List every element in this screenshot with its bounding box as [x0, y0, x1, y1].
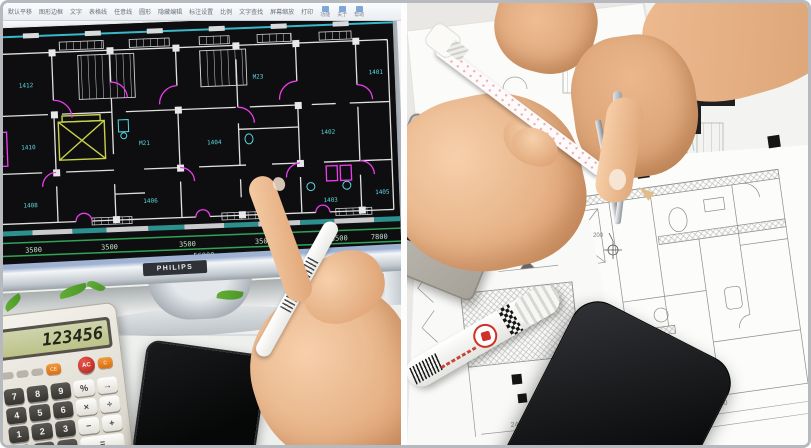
- key-9: 9: [50, 382, 72, 400]
- room-label: 1401: [368, 69, 383, 77]
- key-8: 8: [27, 385, 49, 403]
- memory-key: [31, 367, 44, 374]
- thumbnail: [609, 169, 626, 190]
- tool-label: 关于: [337, 13, 347, 18]
- cad-menu-item: 屏幕缩放: [270, 7, 294, 16]
- ac-key: AC: [77, 356, 96, 375]
- memory-key: [3, 371, 14, 378]
- cad-toolbar-tool: 关于: [337, 6, 347, 18]
- help-icon: [356, 6, 363, 12]
- cad-menu-item: 隐藏编辑: [158, 7, 182, 16]
- right-photo-blueprint-desk: 9000 30700 200 2400: [407, 3, 808, 445]
- key-plus: +: [101, 414, 123, 432]
- left-photo-cad-workstation: 1412 1410 1408 M21 1406 1404 M23 1402 14…: [3, 3, 401, 445]
- key-equals: =: [80, 433, 125, 445]
- room-label: 1410: [21, 144, 36, 152]
- desk-calculator: 123456 CE AC C 7 8 9 % → 4 5 6 × ÷: [3, 302, 134, 445]
- key-0: 0: [10, 444, 32, 445]
- workspace-collage: 1412 1410 1408 M21 1406 1404 M23 1402 14…: [0, 0, 811, 448]
- dim-200: 200: [593, 233, 604, 239]
- dim-label: 3500: [101, 243, 118, 252]
- key-arrow: →: [96, 376, 118, 394]
- function-icon: [322, 6, 329, 12]
- key-3: 3: [54, 419, 76, 437]
- room-label: 1408: [23, 202, 38, 210]
- key-00: 00: [33, 441, 55, 445]
- memory-key: [16, 369, 29, 376]
- marker-logo-glyph: [480, 330, 491, 341]
- dim-label: 3500: [179, 240, 196, 249]
- tool-label: 帮助: [354, 13, 364, 18]
- cad-floorplan-drawing: 1412 1410 1408 M21 1406 1404 M23 1402 14…: [3, 13, 401, 266]
- key-dot: .: [57, 438, 79, 445]
- room-label: M21: [139, 140, 150, 147]
- cad-menu-item: 表格线: [89, 7, 107, 16]
- dim-label: 3500: [25, 246, 42, 255]
- room-label: M23: [252, 73, 263, 80]
- room-label: 1402: [321, 129, 336, 137]
- cad-menu-item: 图形边框: [39, 7, 63, 16]
- cad-screen: 1412 1410 1408 M21 1406 1404 M23 1402 14…: [3, 13, 401, 266]
- key-minus: −: [78, 417, 100, 435]
- room-label: 1406: [143, 197, 158, 205]
- key-2: 2: [31, 422, 53, 440]
- cad-menu-item: 文字: [70, 7, 82, 16]
- key-4: 4: [6, 406, 28, 424]
- about-icon: [339, 6, 346, 12]
- room-label: 1405: [375, 189, 390, 197]
- dim-label-inner: 7800: [371, 233, 388, 242]
- tool-label: 功能: [320, 13, 330, 18]
- key-multiply: ×: [75, 398, 97, 416]
- cad-toolbar-tool: 帮助: [354, 6, 364, 18]
- monitor-brand-text: PHILIPS: [157, 264, 194, 273]
- cad-menubar: 默认平移 图形边框 文字 表格线 任意线 圆形 隐藏编辑 标注设置 比例 文字查…: [3, 3, 401, 21]
- cad-menu-item: 任意线: [114, 7, 132, 16]
- key-5: 5: [29, 403, 51, 421]
- cad-menu-item: 默认平移: [8, 7, 32, 16]
- room-label: 1404: [207, 139, 222, 147]
- key-7: 7: [3, 387, 25, 405]
- cad-menu-item: 标注设置: [189, 7, 213, 16]
- key-1: 1: [8, 425, 30, 443]
- monitor-brand-badge: PHILIPS: [143, 260, 208, 276]
- cad-toolbar-tool: 功能: [320, 6, 330, 18]
- room-label: 1412: [19, 82, 34, 90]
- cad-menu-item: 打印: [301, 7, 313, 16]
- key-divide: ÷: [99, 395, 121, 413]
- calculator-keypad: 7 8 9 % → 4 5 6 × ÷ 1 2 3 − + 0 00 . =: [3, 376, 125, 445]
- room-label: 1403: [323, 197, 338, 205]
- ce-key: CE: [46, 363, 62, 376]
- cad-menu-item: 圆形: [139, 7, 151, 16]
- key-percent: %: [73, 379, 95, 397]
- key-6: 6: [52, 401, 74, 419]
- calculator-display: 123456: [3, 320, 110, 358]
- cad-menu-item: 文字查找: [239, 7, 263, 16]
- c-key: C: [97, 356, 113, 369]
- smartphone-left: [132, 339, 269, 445]
- cad-menu-item: 比例: [220, 7, 232, 16]
